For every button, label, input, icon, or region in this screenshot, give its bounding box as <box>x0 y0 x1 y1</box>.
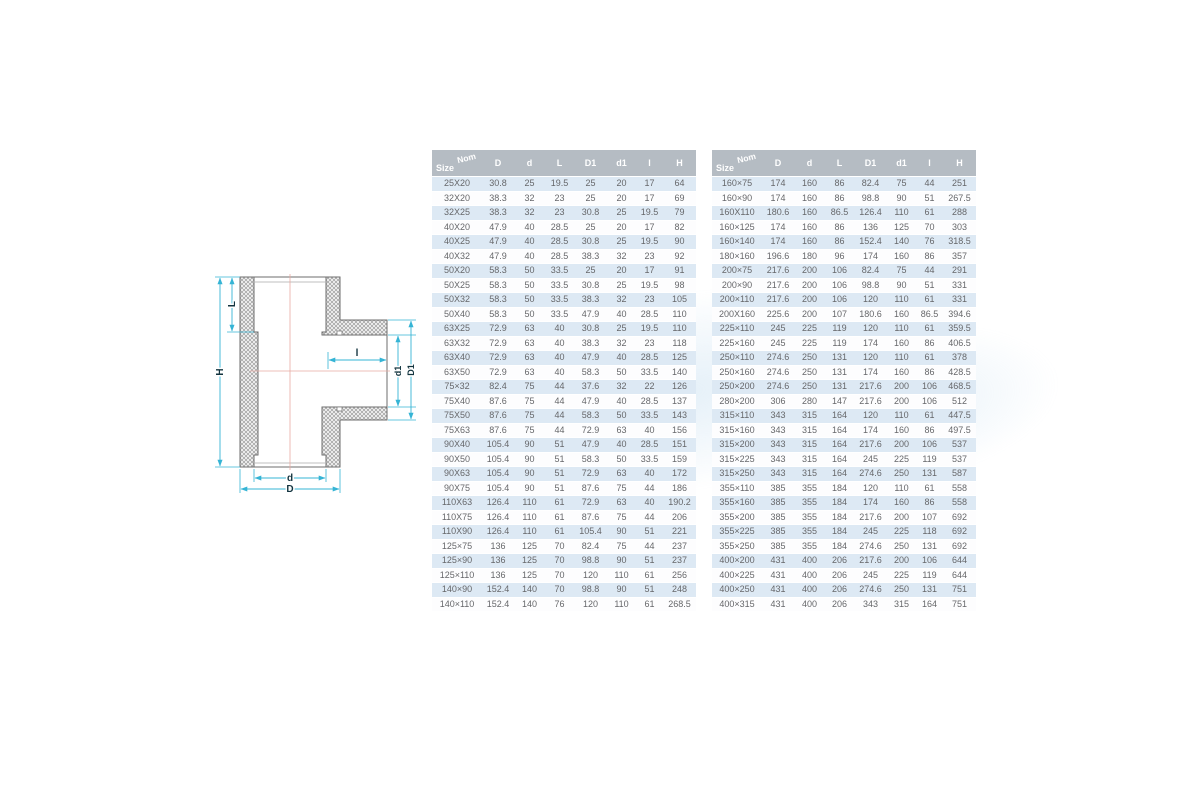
table-cell: 160 <box>794 206 825 221</box>
table-cell: 32X20 <box>432 191 482 206</box>
table-cell: 120 <box>854 409 887 424</box>
table-cell: 125 <box>663 351 696 366</box>
table-cell: 159 <box>663 452 696 467</box>
table-cell: 105.4 <box>482 481 514 496</box>
table-cell: 200×90 <box>712 278 762 293</box>
table-row: 50X2558.35033.530.82519.598 <box>432 278 696 293</box>
table-cell: 105.4 <box>482 452 514 467</box>
table-cell: 61 <box>916 409 943 424</box>
table-row: 250×160274.625013117416086428.5 <box>712 365 976 380</box>
table-row: 355×250385355184274.6250131692 <box>712 539 976 554</box>
table-cell: 86.5 <box>825 206 854 221</box>
table-row: 50X3258.35033.538.33223105 <box>432 293 696 308</box>
table-row: 63X3272.9634038.33223118 <box>432 336 696 351</box>
table-cell: 164 <box>825 409 854 424</box>
table-cell: 110 <box>514 496 545 511</box>
table-cell: 315 <box>794 467 825 482</box>
table-cell: 25 <box>607 235 636 250</box>
table-cell: 125×110 <box>432 568 482 583</box>
tee-fitting-diagram: H L l d1 D1 d D <box>200 262 460 512</box>
table-cell: 200 <box>887 554 916 569</box>
table-cell: 20 <box>607 264 636 279</box>
table-cell: 30.8 <box>482 177 514 192</box>
table-cell: 40 <box>514 235 545 250</box>
table-cell: 25 <box>607 278 636 293</box>
table-cell: 106 <box>916 394 943 409</box>
table-cell: 33.5 <box>636 452 663 467</box>
table-cell: 51 <box>636 554 663 569</box>
table-cell: 343 <box>762 467 794 482</box>
table-cell: 30.8 <box>574 322 607 337</box>
table-cell: 47.9 <box>482 220 514 235</box>
table-cell: 237 <box>663 539 696 554</box>
table-cell: 355 <box>794 481 825 496</box>
table-cell: 47.9 <box>574 351 607 366</box>
table-row: 110X63126.41106172.96340190.2 <box>432 496 696 511</box>
table-cell: 250×110 <box>712 351 762 366</box>
table-cell: 315 <box>794 452 825 467</box>
table-cell: 217.6 <box>854 438 887 453</box>
table-cell: 400 <box>794 597 825 612</box>
table-cell: 106 <box>825 264 854 279</box>
table-cell: 63 <box>514 351 545 366</box>
table-cell: 75 <box>887 177 916 192</box>
column-header: d1 <box>607 150 636 177</box>
table-cell: 110X75 <box>432 510 482 525</box>
table-cell: 200 <box>887 438 916 453</box>
table-cell: 40 <box>514 249 545 264</box>
table-cell: 280 <box>794 394 825 409</box>
label-l: l <box>356 348 359 359</box>
table-cell: 355×110 <box>712 481 762 496</box>
size-label: Size <box>436 163 454 173</box>
table-cell: 87.6 <box>482 409 514 424</box>
table-cell: 44 <box>636 510 663 525</box>
table-cell: 303 <box>943 220 976 235</box>
table-cell: 217.6 <box>854 554 887 569</box>
table-cell: 50 <box>607 365 636 380</box>
table-cell: 87.6 <box>574 510 607 525</box>
table-cell: 58.3 <box>482 307 514 322</box>
table-row: 355×225385355184245225118692 <box>712 525 976 540</box>
table-cell: 160 <box>794 177 825 192</box>
table-cell: 47.9 <box>482 235 514 250</box>
table-cell: 86 <box>825 220 854 235</box>
table-cell: 38.3 <box>574 249 607 264</box>
table-cell: 69 <box>663 191 696 206</box>
table-cell: 537 <box>943 452 976 467</box>
table-cell: 87.6 <box>574 481 607 496</box>
table-cell: 37.6 <box>574 380 607 395</box>
table-cell: 692 <box>943 539 976 554</box>
table-cell: 136 <box>482 539 514 554</box>
table-row: 315×225343315164245225119537 <box>712 452 976 467</box>
table-cell: 343 <box>762 438 794 453</box>
table-cell: 152.4 <box>482 597 514 612</box>
table-cell: 268.5 <box>663 597 696 612</box>
table-cell: 174 <box>762 220 794 235</box>
table-cell: 70 <box>545 568 574 583</box>
label-D: D <box>286 484 293 495</box>
table-cell: 587 <box>943 467 976 482</box>
table-cell: 47.9 <box>574 394 607 409</box>
table-row: 63X2572.9634030.82519.5110 <box>432 322 696 337</box>
table-cell: 38.3 <box>574 336 607 351</box>
table-cell: 40X20 <box>432 220 482 235</box>
table-cell: 318.5 <box>943 235 976 250</box>
dimension-table-left: NomSizeDdLD1d1lH25X2030.82519.5252017643… <box>432 150 696 612</box>
table-cell: 110 <box>887 322 916 337</box>
table-cell: 86 <box>916 249 943 264</box>
table-cell: 126.4 <box>482 496 514 511</box>
table-cell: 140×90 <box>432 583 482 598</box>
table-cell: 151 <box>663 438 696 453</box>
table-cell: 70 <box>545 583 574 598</box>
table-cell: 90X75 <box>432 481 482 496</box>
table-cell: 32 <box>514 191 545 206</box>
table-cell: 160 <box>887 336 916 351</box>
table-cell: 558 <box>943 481 976 496</box>
table-cell: 125×75 <box>432 539 482 554</box>
table-cell: 25 <box>607 322 636 337</box>
table-cell: 174 <box>762 177 794 192</box>
table-cell: 105.4 <box>574 525 607 540</box>
table-cell: 136 <box>482 554 514 569</box>
table-cell: 32 <box>607 249 636 264</box>
table-cell: 250 <box>794 351 825 366</box>
table-cell: 51 <box>545 467 574 482</box>
table-cell: 17 <box>636 191 663 206</box>
table-cell: 51 <box>636 583 663 598</box>
table-row: 50X4058.35033.547.94028.5110 <box>432 307 696 322</box>
table-cell: 160 <box>887 249 916 264</box>
table-cell: 23 <box>545 206 574 221</box>
table-cell: 25X20 <box>432 177 482 192</box>
table-cell: 343 <box>854 597 887 612</box>
table-row: 110X90126.411061105.49051221 <box>432 525 696 540</box>
table-cell: 110 <box>514 525 545 540</box>
table-row: 40X3247.94028.538.3322392 <box>432 249 696 264</box>
table-cell: 315×110 <box>712 409 762 424</box>
table-cell: 431 <box>762 597 794 612</box>
table-cell: 225 <box>794 336 825 351</box>
size-label: Size <box>716 163 734 173</box>
table-cell: 58.3 <box>482 278 514 293</box>
table-row: 160×901741608698.89051267.5 <box>712 191 976 206</box>
branch-socket-notch <box>337 331 342 335</box>
table-cell: 160×90 <box>712 191 762 206</box>
table-cell: 385 <box>762 496 794 511</box>
table-cell: 131 <box>825 351 854 366</box>
table-cell: 221 <box>663 525 696 540</box>
table-cell: 17 <box>636 177 663 192</box>
table-cell: 58.3 <box>482 264 514 279</box>
table-cell: 206 <box>825 568 854 583</box>
table-cell: 184 <box>825 481 854 496</box>
table-cell: 82.4 <box>482 380 514 395</box>
table-cell: 40 <box>607 307 636 322</box>
table-cell: 61 <box>916 322 943 337</box>
table-cell: 251 <box>943 177 976 192</box>
table-cell: 400 <box>794 568 825 583</box>
table-cell: 58.3 <box>574 452 607 467</box>
table-cell: 90 <box>514 467 545 482</box>
table-cell: 72.9 <box>574 423 607 438</box>
table-cell: 120 <box>574 597 607 612</box>
table-cell: 58.3 <box>574 409 607 424</box>
table-cell: 51 <box>636 525 663 540</box>
table-cell: 184 <box>825 510 854 525</box>
table-row: 160X110180.616086.5126.411061288 <box>712 206 976 221</box>
table-row: 90X63105.4905172.96340172 <box>432 467 696 482</box>
table-cell: 110 <box>607 568 636 583</box>
table-cell: 63 <box>607 467 636 482</box>
table-cell: 40 <box>607 351 636 366</box>
table-cell: 118 <box>663 336 696 351</box>
table-cell: 32 <box>607 380 636 395</box>
table-cell: 385 <box>762 525 794 540</box>
table-cell: 400×225 <box>712 568 762 583</box>
table-cell: 33.5 <box>545 278 574 293</box>
table-cell: 126.4 <box>482 525 514 540</box>
table-cell: 343 <box>762 409 794 424</box>
table-cell: 75 <box>607 481 636 496</box>
table-cell: 76 <box>916 235 943 250</box>
table-cell: 110 <box>887 481 916 496</box>
table-cell: 75 <box>887 264 916 279</box>
table-cell: 160 <box>794 235 825 250</box>
table-cell: 19.5 <box>545 177 574 192</box>
table-cell: 217.6 <box>854 394 887 409</box>
table-cell: 225.6 <box>762 307 794 322</box>
table-row: 180×160196.61809617416086357 <box>712 249 976 264</box>
table-row: 50X2058.35033.525201791 <box>432 264 696 279</box>
table-cell: 82.4 <box>854 177 887 192</box>
table-cell: 137 <box>663 394 696 409</box>
table-cell: 152.4 <box>854 235 887 250</box>
table-cell: 119 <box>825 336 854 351</box>
table-cell: 20 <box>607 177 636 192</box>
column-header: L <box>545 150 574 177</box>
table-cell: 206 <box>825 554 854 569</box>
table-cell: 126 <box>663 380 696 395</box>
nom-label: Nom <box>736 151 757 165</box>
table-cell: 32 <box>607 336 636 351</box>
table-row: 200×90217.620010698.89051331 <box>712 278 976 293</box>
table-cell: 75 <box>514 423 545 438</box>
table-cell: 274.6 <box>854 467 887 482</box>
table-cell: 172 <box>663 467 696 482</box>
table-cell: 237 <box>663 554 696 569</box>
table-cell: 23 <box>545 191 574 206</box>
table-cell: 72.9 <box>574 496 607 511</box>
table-row: 32X2538.3322330.82519.579 <box>432 206 696 221</box>
table-cell: 274.6 <box>854 583 887 598</box>
table-cell: 164 <box>825 423 854 438</box>
table-cell: 40X32 <box>432 249 482 264</box>
table-cell: 33.5 <box>545 264 574 279</box>
table-cell: 431 <box>762 583 794 598</box>
table-cell: 125×90 <box>432 554 482 569</box>
table-cell: 47.9 <box>482 249 514 264</box>
table-cell: 217.6 <box>762 293 794 308</box>
table-cell: 79 <box>663 206 696 221</box>
table-cell: 174 <box>854 249 887 264</box>
table-row: 355×200385355184217.6200107692 <box>712 510 976 525</box>
table-row: 32X2038.3322325201769 <box>432 191 696 206</box>
table-cell: 118 <box>916 525 943 540</box>
table-row: 200×75217.620010682.47544291 <box>712 264 976 279</box>
table-cell: 72.9 <box>574 467 607 482</box>
table-cell: 160 <box>887 307 916 322</box>
table-cell: 87.6 <box>482 423 514 438</box>
table-cell: 385 <box>762 539 794 554</box>
table-cell: 38.3 <box>482 206 514 221</box>
table-cell: 315×160 <box>712 423 762 438</box>
table-cell: 248 <box>663 583 696 598</box>
label-D1: D1 <box>406 364 416 376</box>
table-cell: 25 <box>607 206 636 221</box>
table-cell: 86.5 <box>916 307 943 322</box>
table-cell: 355×160 <box>712 496 762 511</box>
table-cell: 44 <box>545 394 574 409</box>
table-cell: 180.6 <box>854 307 887 322</box>
table-cell: 120 <box>574 568 607 583</box>
table-cell: 40 <box>607 438 636 453</box>
table-cell: 90 <box>514 438 545 453</box>
dimension-table-right: NomSizeDdLD1d1lH160×751741608682.4754425… <box>712 150 976 612</box>
table-row: 280×200306280147217.6200106512 <box>712 394 976 409</box>
table-cell: 90 <box>607 554 636 569</box>
table-cell: 200 <box>794 307 825 322</box>
table-cell: 447.5 <box>943 409 976 424</box>
table-cell: 75X50 <box>432 409 482 424</box>
table-cell: 87.6 <box>482 394 514 409</box>
table-cell: 44 <box>636 539 663 554</box>
table-cell: 70 <box>545 539 574 554</box>
table-cell: 25 <box>574 191 607 206</box>
table-cell: 63 <box>514 365 545 380</box>
table-cell: 200×75 <box>712 264 762 279</box>
table-cell: 256 <box>663 568 696 583</box>
spec-table: NomSizeDdLD1d1lH25X2030.82519.5252017643… <box>432 150 696 612</box>
table-cell: 644 <box>943 568 976 583</box>
catalog-page: H L l d1 D1 d D NomSizeDdLD1d1lH25X2030.… <box>0 0 1200 800</box>
label-H: H <box>215 368 226 375</box>
table-cell: 125 <box>514 568 545 583</box>
table-cell: 98.8 <box>854 191 887 206</box>
table-cell: 131 <box>916 467 943 482</box>
table-cell: 751 <box>943 597 976 612</box>
table-cell: 160 <box>794 220 825 235</box>
table-cell: 288 <box>943 206 976 221</box>
table-cell: 200 <box>887 394 916 409</box>
table-cell: 28.5 <box>636 438 663 453</box>
size-nom-header: NomSize <box>432 150 482 177</box>
table-cell: 431 <box>762 568 794 583</box>
table-cell: 160 <box>887 496 916 511</box>
table-cell: 406.5 <box>943 336 976 351</box>
table-cell: 25 <box>574 220 607 235</box>
table-cell: 136 <box>854 220 887 235</box>
table-cell: 23 <box>636 293 663 308</box>
table-cell: 245 <box>854 525 887 540</box>
table-cell: 200 <box>794 278 825 293</box>
table-cell: 174 <box>854 336 887 351</box>
table-cell: 47.9 <box>574 307 607 322</box>
table-cell: 164 <box>825 438 854 453</box>
table-cell: 558 <box>943 496 976 511</box>
table-cell: 120 <box>854 481 887 496</box>
table-row: 315×200343315164217.6200106537 <box>712 438 976 453</box>
table-cell: 245 <box>854 568 887 583</box>
table-cell: 110 <box>663 307 696 322</box>
table-cell: 315×225 <box>712 452 762 467</box>
table-cell: 160 <box>887 423 916 438</box>
table-cell: 428.5 <box>943 365 976 380</box>
table-row: 75X5087.6754458.35033.5143 <box>432 409 696 424</box>
table-cell: 90 <box>663 235 696 250</box>
table-cell: 217.6 <box>762 278 794 293</box>
table-cell: 75 <box>514 394 545 409</box>
table-cell: 90X50 <box>432 452 482 467</box>
table-cell: 90 <box>514 452 545 467</box>
table-cell: 64 <box>663 177 696 192</box>
table-cell: 63 <box>607 423 636 438</box>
table-row: 63X4072.9634047.94028.5125 <box>432 351 696 366</box>
table-cell: 126.4 <box>482 510 514 525</box>
table-row: 160×751741608682.47544251 <box>712 177 976 192</box>
table-cell: 267.5 <box>943 191 976 206</box>
table-cell: 86 <box>825 191 854 206</box>
table-cell: 40 <box>545 336 574 351</box>
table-cell: 40 <box>636 423 663 438</box>
table-cell: 105 <box>663 293 696 308</box>
table-cell: 58.3 <box>574 365 607 380</box>
table-cell: 355 <box>794 496 825 511</box>
table-cell: 206 <box>825 583 854 598</box>
table-cell: 32X25 <box>432 206 482 221</box>
table-cell: 315 <box>794 423 825 438</box>
table-cell: 200 <box>887 380 916 395</box>
table-cell: 40 <box>636 496 663 511</box>
header-row: NomSizeDdLD1d1lH <box>432 150 696 177</box>
table-cell: 110 <box>887 206 916 221</box>
table-cell: 44 <box>916 264 943 279</box>
table-cell: 63X50 <box>432 365 482 380</box>
table-cell: 61 <box>916 481 943 496</box>
table-cell: 38.3 <box>482 191 514 206</box>
table-cell: 82.4 <box>854 264 887 279</box>
table-cell: 28.5 <box>636 394 663 409</box>
table-cell: 200 <box>887 510 916 525</box>
table-cell: 110 <box>887 351 916 366</box>
table-cell: 180.6 <box>762 206 794 221</box>
table-row: 160×1251741608613612570303 <box>712 220 976 235</box>
table-cell: 174 <box>854 496 887 511</box>
table-cell: 28.5 <box>636 351 663 366</box>
table-cell: 23 <box>636 336 663 351</box>
table-cell: 107 <box>916 510 943 525</box>
table-cell: 63X32 <box>432 336 482 351</box>
table-cell: 86 <box>916 365 943 380</box>
table-row: 400×250431400206274.6250131751 <box>712 583 976 598</box>
table-cell: 140 <box>663 365 696 380</box>
table-row: 315×16034331516417416086497.5 <box>712 423 976 438</box>
nom-label: Nom <box>456 151 477 165</box>
table-cell: 378 <box>943 351 976 366</box>
table-cell: 33.5 <box>636 365 663 380</box>
